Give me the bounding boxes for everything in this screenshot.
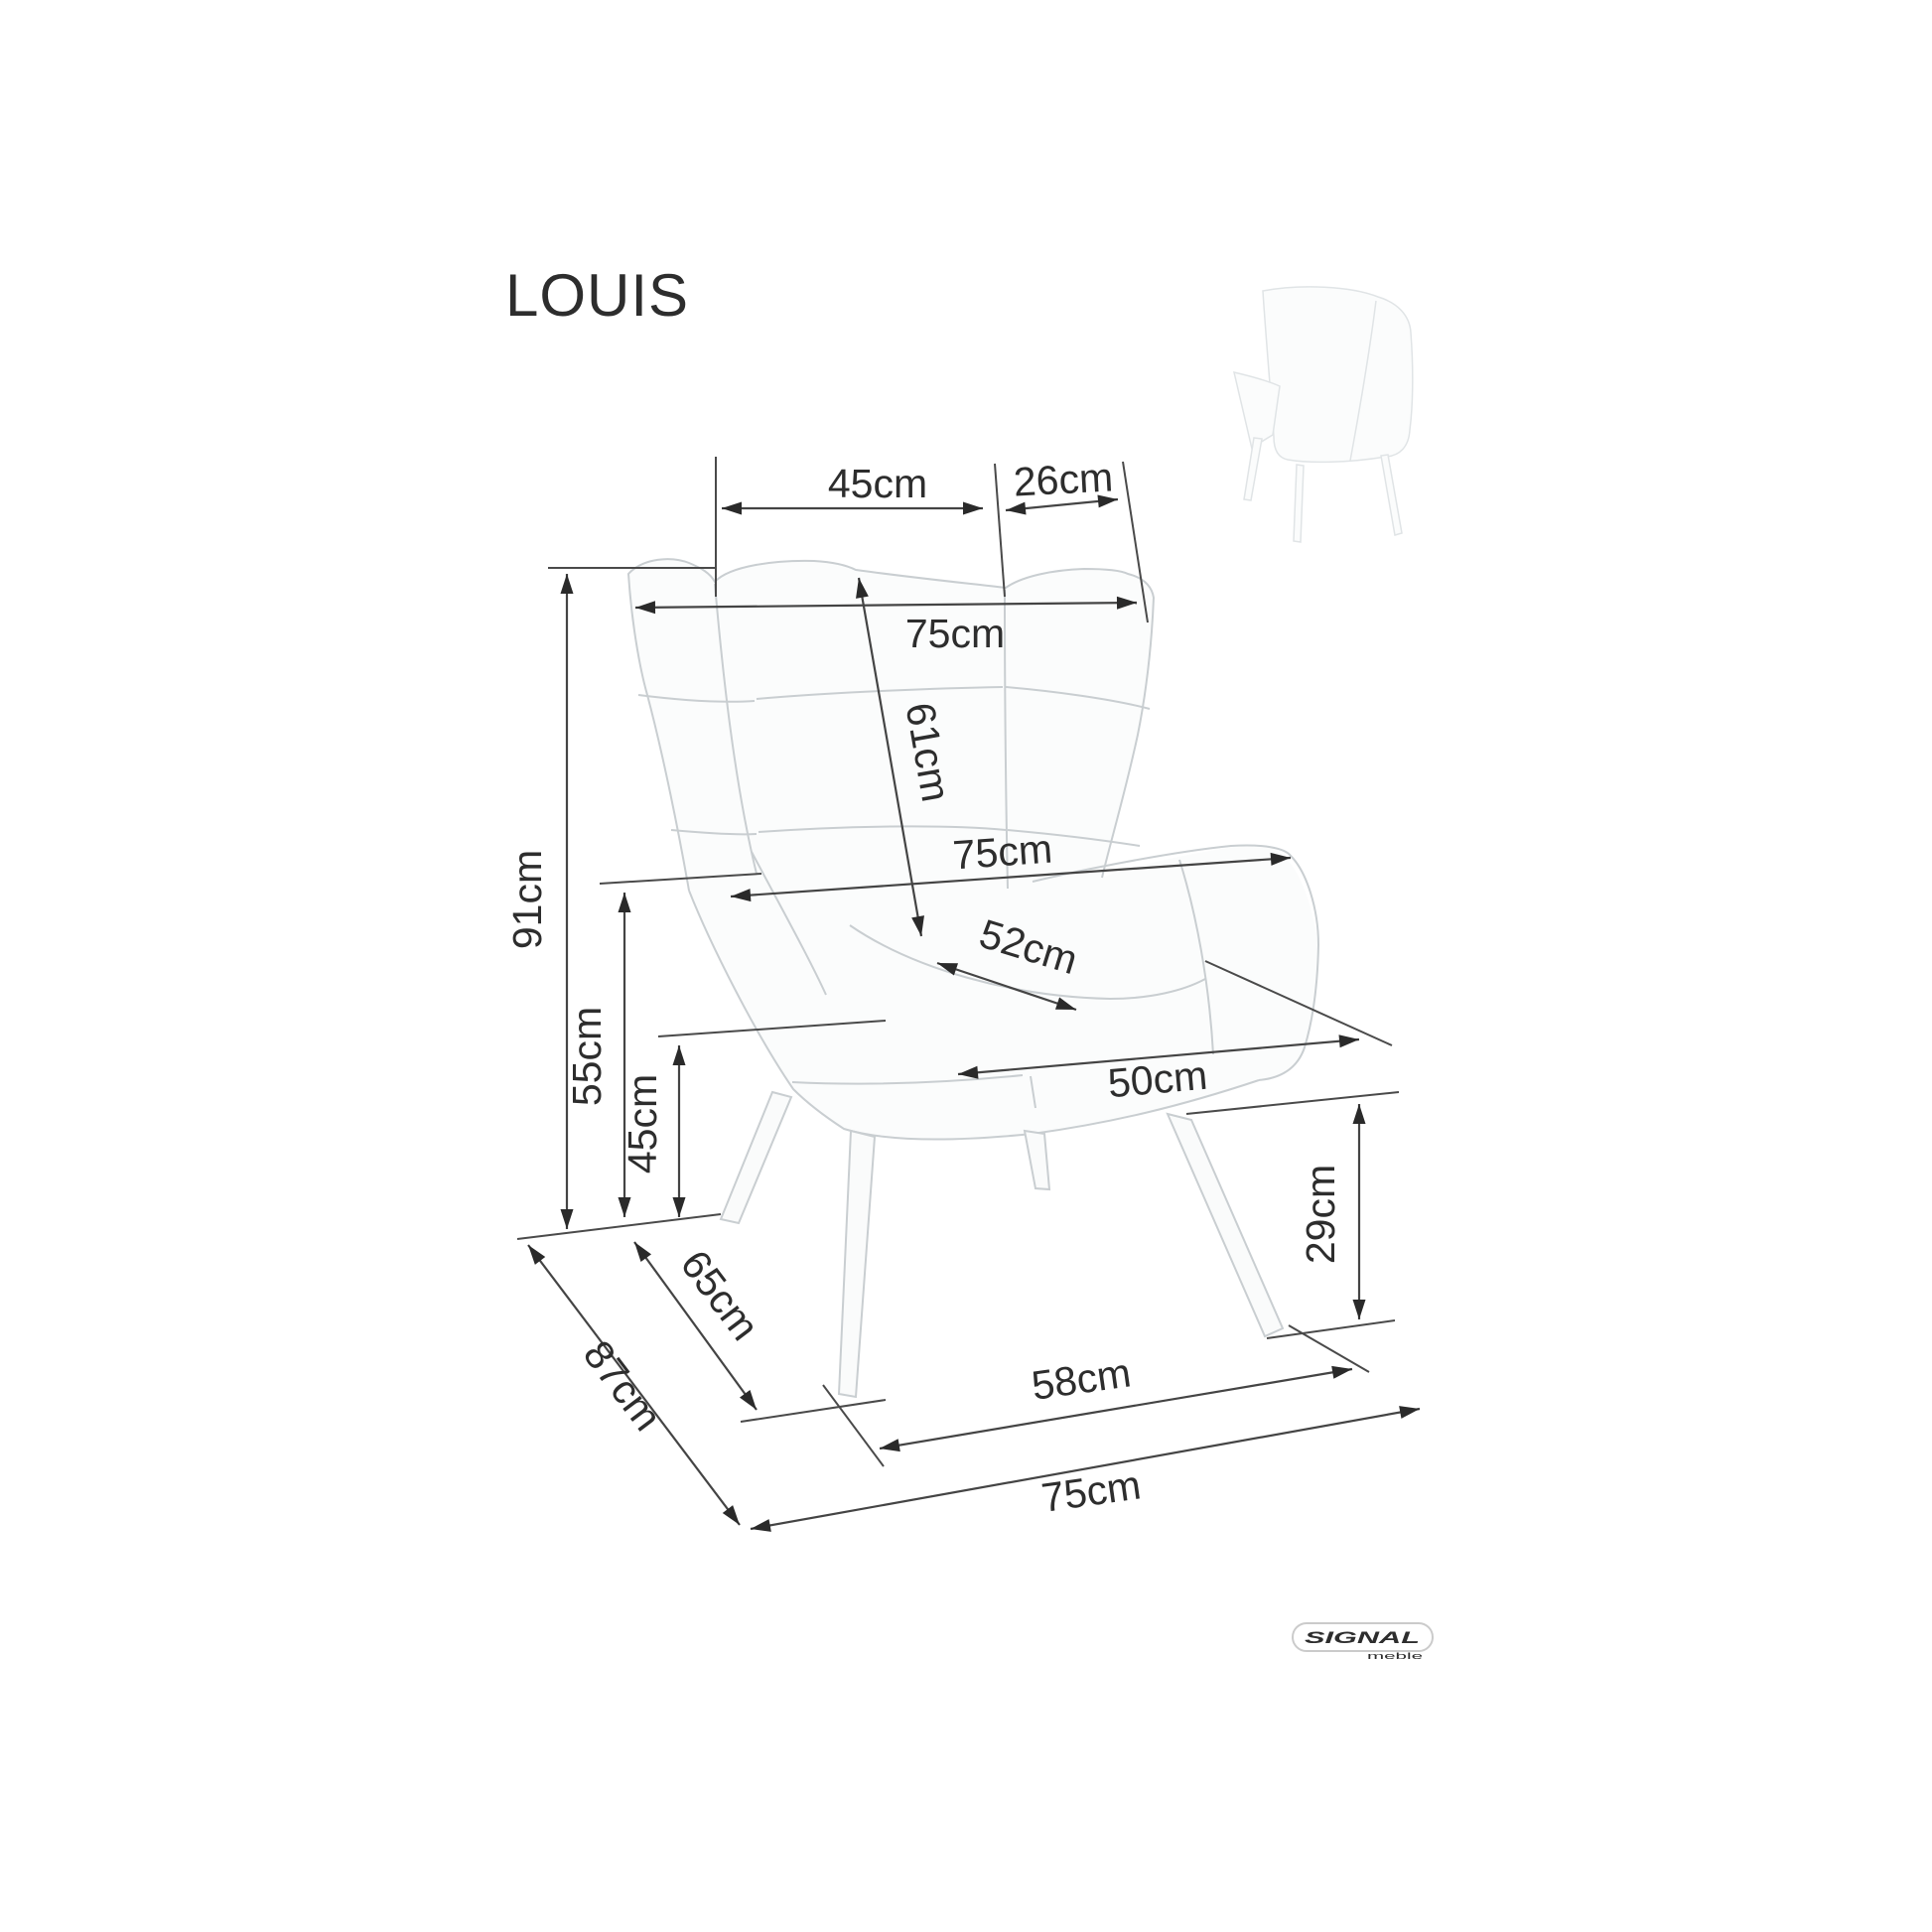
svg-text:45cm: 45cm [620,1074,665,1173]
svg-text:75cm: 75cm [951,826,1053,879]
svg-text:LOUIS: LOUIS [505,262,689,329]
svg-text:meble: meble [1367,1651,1423,1662]
svg-text:91cm: 91cm [504,850,550,949]
svg-text:45cm: 45cm [828,461,927,506]
svg-text:55cm: 55cm [564,1007,610,1106]
svg-text:26cm: 26cm [1013,454,1115,504]
svg-text:29cm: 29cm [1298,1165,1343,1264]
svg-text:SIGNAL: SIGNAL [1305,1628,1420,1647]
svg-text:75cm: 75cm [905,611,1005,656]
svg-text:50cm: 50cm [1106,1052,1209,1107]
